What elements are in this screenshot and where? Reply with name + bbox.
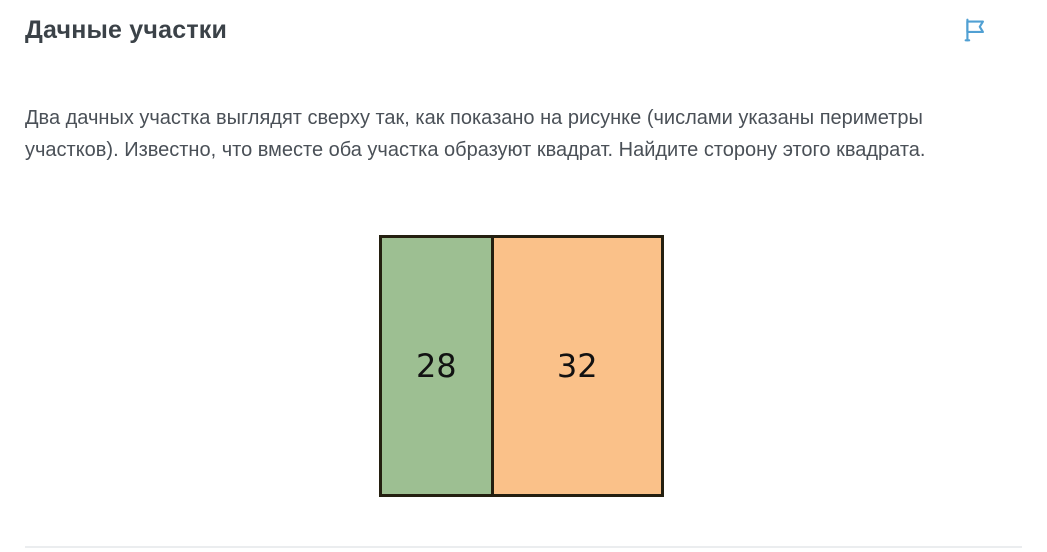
page-title: Дачные участки xyxy=(25,16,227,45)
orange-plot-perimeter-label: 32 xyxy=(557,347,598,385)
green-plot: 28 xyxy=(382,238,494,494)
orange-plot: 32 xyxy=(494,238,661,494)
bottom-divider xyxy=(25,546,1022,548)
task-statement: Два дачных участка выглядят сверху так, … xyxy=(25,102,970,166)
task-page: Дачные участки Два дачных участка выгляд… xyxy=(0,0,1047,552)
green-plot-perimeter-label: 28 xyxy=(416,347,457,385)
report-flag-button[interactable] xyxy=(960,15,990,45)
plots-figure: 28 32 xyxy=(379,235,664,497)
flag-icon xyxy=(962,31,988,46)
